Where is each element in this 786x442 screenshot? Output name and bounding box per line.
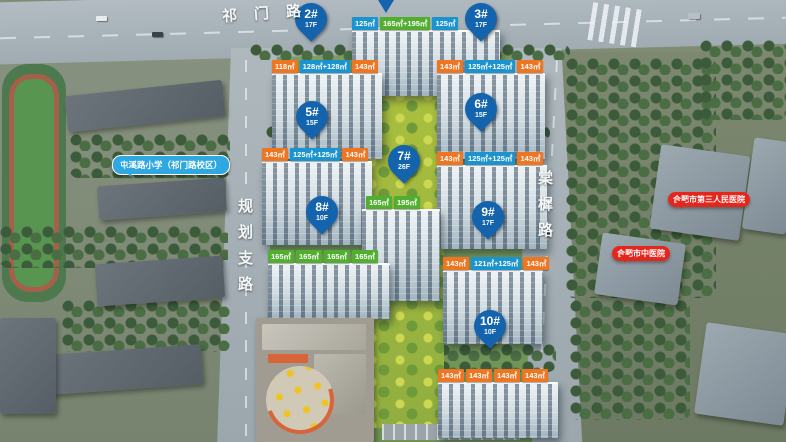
building-floors: 26F — [387, 164, 421, 171]
unit-area-tag: 195㎡ — [394, 196, 420, 209]
unit-area-tag: 165㎡ — [324, 250, 350, 263]
landmark-bubble-tcm-hospital: 合肥市中医院 — [612, 246, 670, 261]
building-2-unit-labels: 118㎡ 128㎡+128㎡ 143㎡ — [272, 60, 378, 73]
building-7-unit-labels: 165㎡ 195㎡ — [366, 196, 420, 209]
unit-area-tag: 143㎡ — [494, 369, 520, 382]
building-5-unit-labels: 143㎡ 125㎡+125㎡ 143㎡ — [262, 148, 368, 161]
building-3-unit-labels: 143㎡ 125㎡+125㎡ 143㎡ — [437, 60, 543, 73]
unit-area-tag: 143㎡ — [523, 257, 549, 270]
unit-area-tag: 143㎡ — [443, 257, 469, 270]
building-number: 9# — [471, 206, 505, 218]
building-number: 6# — [464, 98, 498, 110]
tree-canopy — [700, 40, 786, 120]
kindergarten — [256, 318, 374, 442]
unit-area-tag: 125㎡+125㎡ — [465, 152, 515, 165]
building-number: 3# — [464, 8, 498, 20]
pin-building-7: 7#26F — [387, 145, 421, 193]
road-label-tangxi: 棠樨路 — [534, 170, 555, 248]
vehicle — [688, 13, 700, 19]
hospital-building — [594, 232, 686, 305]
vehicle — [152, 32, 163, 37]
building-number: 7# — [387, 150, 421, 162]
masterplan-aerial-view: 125㎡ 165㎡+195㎡ 125㎡ 118㎡ 128㎡+128㎡ 143㎡ … — [0, 0, 786, 442]
building-6-unit-labels: 143㎡ 125㎡+125㎡ 143㎡ — [437, 152, 543, 165]
building-floors: 17F — [464, 22, 498, 29]
unit-area-tag: 143㎡ — [517, 60, 543, 73]
pin-building-6: 6#15F — [464, 93, 498, 141]
building-floors: 17F — [471, 220, 505, 227]
unit-area-tag: 165㎡ — [268, 250, 294, 263]
unit-area-tag: 143㎡ — [437, 60, 463, 73]
building-floors: 17F — [294, 22, 328, 29]
road-label-guihua: 规划支路 — [234, 198, 255, 302]
unit-area-tag: 143㎡ — [522, 369, 548, 382]
building-9-unit-labels: 143㎡ 121㎡+125㎡ 143㎡ — [443, 257, 549, 270]
unit-area-tag: 118㎡ — [272, 60, 298, 73]
unit-area-tag: 125㎡ — [432, 17, 458, 30]
school-building — [95, 256, 226, 307]
building-number: 10# — [473, 315, 507, 327]
unit-area-tag: 143㎡ — [466, 369, 492, 382]
building-floors: 15F — [464, 112, 498, 119]
residential-building-8 — [268, 263, 390, 319]
building-10-unit-labels: 143㎡ 143㎡ 143㎡ 143㎡ — [438, 369, 548, 382]
building-number: 8# — [305, 201, 339, 213]
landmark-label: 屯溪路小学（祁门路校区） — [120, 159, 222, 171]
unit-area-tag: 165㎡ — [366, 196, 392, 209]
unit-area-tag: 165㎡ — [352, 250, 378, 263]
landmark-label: 合肥市中医院 — [617, 248, 665, 259]
building-number: 5# — [295, 106, 329, 118]
city-building — [694, 322, 786, 426]
building-floors: 10F — [473, 329, 507, 336]
unit-area-tag: 121㎡+125㎡ — [471, 257, 521, 270]
pin-building-3: 3#17F — [464, 3, 498, 51]
landmark-bubble-school: 屯溪路小学（祁门路校区） — [112, 155, 230, 175]
vehicle — [96, 16, 107, 21]
pin-building-10: 10#10F — [473, 310, 507, 358]
unit-area-tag: 125㎡ — [352, 17, 378, 30]
pin-building-9: 9#17F — [471, 201, 505, 249]
kindergarten-accent — [268, 354, 308, 363]
building-1-unit-labels: 125㎡ 165㎡+195㎡ 125㎡ — [352, 17, 458, 30]
unit-area-tag: 143㎡ — [262, 148, 288, 161]
tree-canopy — [62, 300, 230, 352]
unit-area-tag: 143㎡ — [517, 152, 543, 165]
unit-area-tag: 143㎡ — [352, 60, 378, 73]
pin-building-8: 8#10F — [305, 196, 339, 244]
pin-building-5: 5#15F — [295, 101, 329, 149]
unit-area-tag: 143㎡ — [342, 148, 368, 161]
unit-area-tag: 165㎡+195㎡ — [380, 17, 430, 30]
landmark-bubble-hospital-3rd: 合肥市第三人民医院 — [668, 192, 750, 207]
unit-area-tag: 125㎡+125㎡ — [290, 148, 340, 161]
building-8-unit-labels: 165㎡ 165㎡ 165㎡ 165㎡ — [268, 250, 378, 263]
city-building — [0, 318, 56, 414]
tree-canopy — [570, 300, 690, 420]
pin-building-1-tip — [378, 0, 394, 13]
unit-area-tag: 128㎡+128㎡ — [300, 60, 350, 73]
building-floors: 15F — [295, 120, 329, 127]
building-floors: 10F — [305, 215, 339, 222]
crosswalk — [587, 2, 644, 48]
unit-area-tag: 143㎡ — [437, 152, 463, 165]
landmark-label: 合肥市第三人民医院 — [673, 194, 745, 205]
unit-area-tag: 125㎡+125㎡ — [465, 60, 515, 73]
unit-area-tag: 165㎡ — [296, 250, 322, 263]
residential-building-10 — [438, 382, 558, 438]
unit-area-tag: 143㎡ — [438, 369, 464, 382]
kindergarten-roof — [262, 324, 366, 350]
